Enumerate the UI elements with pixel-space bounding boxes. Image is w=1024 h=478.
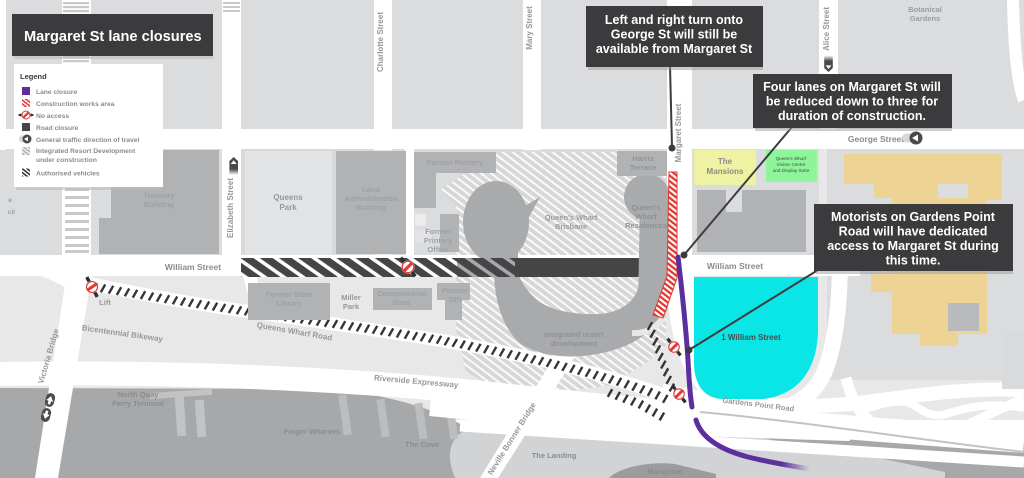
svg-text:Harris: Harris <box>632 154 654 163</box>
svg-text:Margaret Street: Margaret Street <box>674 103 683 162</box>
svg-text:Left and right turn onto: Left and right turn onto <box>605 13 744 27</box>
svg-text:Residences: Residences <box>625 221 667 230</box>
svg-text:Ferry Terminal: Ferry Terminal <box>112 399 164 408</box>
svg-text:and Display Suite: and Display Suite <box>773 168 810 173</box>
svg-text:Former State: Former State <box>266 290 312 299</box>
svg-text:Road will have dedicated: Road will have dedicated <box>839 225 988 239</box>
svg-text:Building: Building <box>356 203 386 212</box>
svg-text:Administration: Administration <box>345 194 398 203</box>
svg-text:Queen's Wharf: Queen's Wharf <box>545 213 598 222</box>
svg-text:Four lanes on Margaret St will: Four lanes on Margaret St will <box>763 80 941 94</box>
svg-text:this time.: this time. <box>886 254 941 268</box>
svg-text:access to Margaret St during: access to Margaret St during <box>827 239 999 253</box>
svg-text:cil: cil <box>8 209 15 216</box>
svg-text:Park: Park <box>279 203 297 212</box>
svg-text:Motorists on Gardens Point: Motorists on Gardens Point <box>831 210 996 224</box>
svg-text:The Landing: The Landing <box>532 451 577 460</box>
svg-text:Lift: Lift <box>99 298 111 307</box>
svg-text:Finger Wharves: Finger Wharves <box>284 427 340 436</box>
svg-text:General traffic direction of t: General traffic direction of travel <box>36 137 139 144</box>
svg-text:available from Margaret St: available from Margaret St <box>596 42 753 56</box>
svg-text:1 William Street: 1 William Street <box>721 333 781 342</box>
svg-text:No access: No access <box>36 113 69 120</box>
svg-text:William Street: William Street <box>707 261 763 271</box>
svg-text:duration of construction.: duration of construction. <box>778 109 926 123</box>
svg-text:DPI: DPI <box>449 295 462 304</box>
svg-text:George Street: George Street <box>848 134 904 144</box>
svg-text:Land: Land <box>362 185 380 194</box>
svg-text:Visitor Centre: Visitor Centre <box>777 162 806 167</box>
svg-text:Mangrove: Mangrove <box>647 467 682 476</box>
svg-text:Authorised vehicles: Authorised vehicles <box>36 171 100 178</box>
svg-text:Integrated Resort Development: Integrated Resort Development <box>36 148 136 155</box>
svg-text:Queens: Queens <box>273 193 303 202</box>
svg-text:Miller: Miller <box>341 293 361 302</box>
svg-text:Commissariat: Commissariat <box>377 289 427 298</box>
svg-text:Mansions: Mansions <box>707 167 744 176</box>
svg-text:Building: Building <box>144 200 174 209</box>
svg-text:Margaret St lane closures: Margaret St lane closures <box>24 29 202 45</box>
svg-text:Former Printery: Former Printery <box>427 158 484 167</box>
svg-text:Elizabeth Street: Elizabeth Street <box>226 178 235 238</box>
svg-text:Legend: Legend <box>20 72 47 81</box>
svg-text:Brisbane: Brisbane <box>555 222 587 231</box>
svg-text:Treasury: Treasury <box>143 191 175 200</box>
svg-text:Botanical: Botanical <box>908 5 942 14</box>
svg-text:Queen's Wharf: Queen's Wharf <box>776 156 807 161</box>
svg-text:Road closure: Road closure <box>36 125 79 132</box>
svg-text:Printery: Printery <box>424 236 453 245</box>
svg-text:Gardens: Gardens <box>910 14 940 23</box>
svg-text:Store: Store <box>392 298 411 307</box>
svg-text:e: e <box>8 197 12 204</box>
svg-text:Former: Former <box>425 227 451 236</box>
svg-text:Park: Park <box>343 302 360 311</box>
svg-text:North Quay: North Quay <box>118 390 160 399</box>
svg-text:Former: Former <box>442 286 468 295</box>
svg-text:Mary Street: Mary Street <box>525 6 534 50</box>
svg-text:Queen's: Queen's <box>631 203 660 212</box>
svg-text:Charlotte Street: Charlotte Street <box>376 12 385 72</box>
svg-text:The: The <box>718 157 733 166</box>
svg-text:Office: Office <box>427 245 448 254</box>
svg-text:Lane closure: Lane closure <box>36 89 78 96</box>
svg-text:Alice Street: Alice Street <box>822 7 831 51</box>
svg-text:Construction works area: Construction works area <box>36 101 115 108</box>
svg-text:development: development <box>551 339 598 348</box>
svg-text:be reduced down to three for: be reduced down to three for <box>766 95 938 109</box>
svg-text:Library: Library <box>276 299 302 308</box>
svg-text:Integrated resort: Integrated resort <box>544 330 604 339</box>
svg-text:The Cove: The Cove <box>405 440 439 449</box>
svg-text:William Street: William Street <box>165 262 221 272</box>
svg-text:under construction: under construction <box>36 157 97 164</box>
svg-text:Terrace: Terrace <box>630 163 657 172</box>
svg-text:Wharf: Wharf <box>635 212 657 221</box>
svg-text:George St will still be: George St will still be <box>611 28 737 42</box>
